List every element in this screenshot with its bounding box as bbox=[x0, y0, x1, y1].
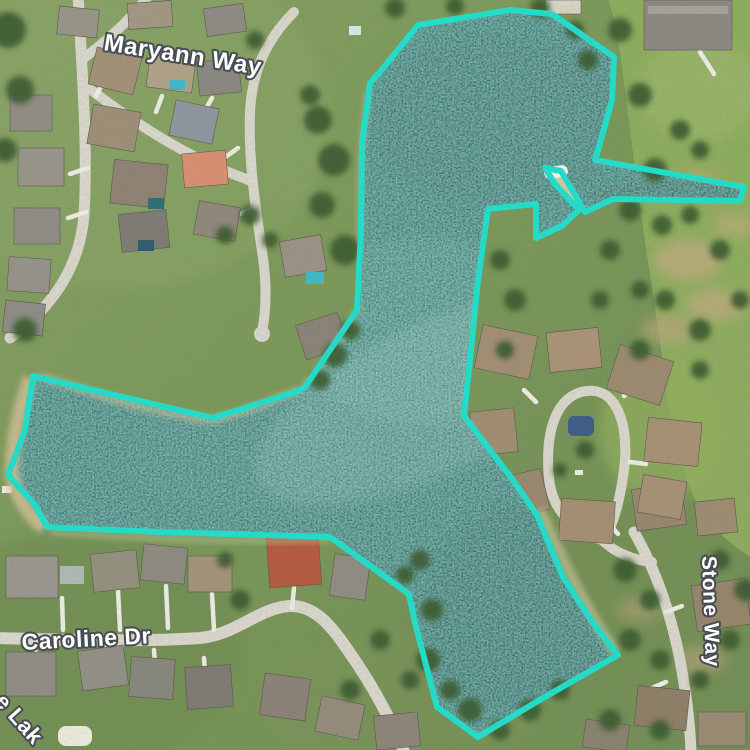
stone-way-label: Stone Way bbox=[697, 555, 724, 667]
satellite-map-canvas[interactable]: Maryann Way Caroline Dr Stone Way e Lak bbox=[0, 0, 750, 750]
satellite-map-viewport[interactable]: Maryann Way Caroline Dr Stone Way e Lak bbox=[0, 0, 750, 750]
